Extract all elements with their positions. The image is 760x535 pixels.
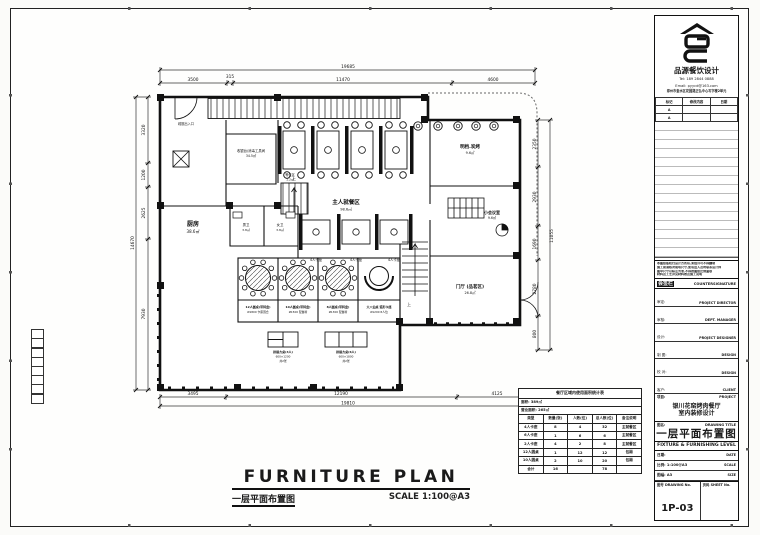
stats-cell: 4 xyxy=(568,423,593,431)
stats-cell: 4人卡座 xyxy=(519,423,544,431)
drawing-sheet: { "footer": { "title": "FURNITURE PLAN",… xyxy=(0,0,760,535)
sign-role: PROJECT DIRECTOR xyxy=(699,301,736,305)
rev-cell xyxy=(710,114,737,122)
room-area-kitchen: 38.6㎡ xyxy=(187,228,200,234)
stats-cell: 12人圆桌 xyxy=(519,448,544,456)
dim-bottom-overall: 19810 xyxy=(341,401,355,407)
drawing-title-label-cn: 图名: xyxy=(657,423,665,427)
exit-door-label: 疏散出入口 xyxy=(178,121,194,126)
table-row: 12人圆桌11212包厢 xyxy=(519,448,642,456)
sign-label: 审定: xyxy=(657,300,665,304)
booth-label-1: 4人卡座 xyxy=(310,257,323,262)
stats-header: 数量(张) xyxy=(543,415,568,423)
table-row: 合计1678 xyxy=(519,465,642,473)
wc-fixture xyxy=(286,212,295,218)
sign-row-director: 审定:PROJECT DIRECTOR xyxy=(655,289,738,307)
room-label-bbq: 明档.炭烤 xyxy=(460,143,480,150)
table-row: 6人卡座166主就餐区 xyxy=(519,432,642,440)
table-row: 2人卡座428主就餐区 xyxy=(519,440,642,448)
table-label-t4b: Ø1200 8人位 xyxy=(370,309,388,314)
drawing-no-label: 图号 DRAWING No. xyxy=(655,482,701,498)
meta-row-scale: 比例: 1:100@A3SCALE xyxy=(655,461,738,471)
stats-cell xyxy=(617,465,642,473)
stair-mid xyxy=(281,183,308,214)
rev-cell: A xyxy=(656,114,683,122)
stats-cell: 78 xyxy=(592,465,617,473)
sign-role: DESIGN xyxy=(722,371,736,375)
title-block: 品源餐饮设计 Tel: 189 2844 0888 Email: pyycd@1… xyxy=(654,15,739,521)
stats-cell: 10人圆桌 xyxy=(519,457,544,465)
table-row: A xyxy=(656,106,738,114)
sheet-no-label: 页码 SHEET No. xyxy=(701,482,738,498)
dim-left-2: 1200 xyxy=(141,169,147,180)
stats-cell: 8 xyxy=(543,423,568,431)
meta-row-date: 日期:DATE xyxy=(655,451,738,461)
sign-row-designer: 设计:PROJECT DESIGNER xyxy=(655,324,738,342)
dim-bottom-1: 3495 xyxy=(188,391,199,397)
stats-cell: 20 xyxy=(592,457,617,465)
dim-right-2: 2930 xyxy=(532,191,538,202)
meta-en: DATE xyxy=(726,453,736,457)
stats-header: 类型 xyxy=(519,415,544,423)
countersign-en: COUNTERSIGNATURE xyxy=(694,282,736,286)
sign-row-check: 校 对:DESIGN xyxy=(655,359,738,377)
drawing-footer: FURNITURE PLAN 一层平面布置图 SCALE 1:100@A3 xyxy=(232,467,470,507)
stats-cell: 10 xyxy=(568,457,593,465)
stair-top-run xyxy=(208,99,400,119)
rev-cell: A xyxy=(656,106,683,114)
company-email: Email: pyycd@163.com xyxy=(655,84,738,88)
dim-left-1: 3320 xyxy=(141,124,147,135)
stats-title: 餐厅区域内使用面积统计表 xyxy=(519,389,642,399)
stats-cell xyxy=(568,465,593,473)
sign-role: DEPT. MANAGER xyxy=(705,318,736,322)
project-name: 银川花窑烤肉餐厅 室内装修设计 xyxy=(655,401,738,422)
stats-cell: 6 xyxy=(568,432,593,440)
dim-top-2: 315 xyxy=(226,74,234,80)
meta-en: SCALE xyxy=(724,463,736,467)
stats-cell: 2 xyxy=(568,440,593,448)
table-label-t4a: 大八仙桌 弧形卡座 xyxy=(366,304,391,309)
note-line: 材料及工艺详见材料表及施工说明 xyxy=(657,273,736,277)
project-label-en: PROJECT xyxy=(719,395,736,399)
table-row: 10人圆桌21020包厢 xyxy=(519,457,642,465)
stats-cell: 6 xyxy=(592,432,617,440)
table-row: 4人卡座8432主就餐区 xyxy=(519,423,642,431)
footer-scale: SCALE 1:100@A3 xyxy=(389,492,470,502)
sheet-number-empty xyxy=(701,498,738,520)
table-label-t1b: Ø1800 卡座围合 xyxy=(247,309,269,314)
footer-title-cn: 一层平面布置图 xyxy=(232,492,295,507)
seating-stats-table: 餐厅区域内使用面积统计表 面积: 389㎡ 营业面积: 265㎡ 类型 数量(张… xyxy=(518,388,642,474)
meta-en: SIZE xyxy=(728,473,736,477)
sign-row-draft: 制 图:DESIGN xyxy=(655,342,738,360)
drawing-number-box: 图号 DRAWING No. 页码 SHEET No. 1P-03 xyxy=(655,481,738,520)
table-label-s2a: 拼接方桌(6人) xyxy=(336,349,356,354)
stats-sub1: 面积: 389㎡ xyxy=(519,398,642,406)
room-area-dining: 98.6㎡ xyxy=(340,207,352,212)
dim-left-4: 7930 xyxy=(141,308,147,319)
table-label-t3a: 8人圆桌(带转盘) xyxy=(327,304,350,309)
stats-cell: 1 xyxy=(543,448,568,456)
room-area-bbq: 9.6㎡ xyxy=(466,150,475,155)
rev-header: 日期 xyxy=(710,98,737,106)
meta-label: 日期: xyxy=(657,453,666,457)
fold-scale-strip xyxy=(31,330,44,404)
sheet-no-label-cn: 页码 xyxy=(703,483,710,487)
sign-row-manager: 审核:DEPT. MANAGER xyxy=(655,307,738,325)
floor-plan: 19685 3500 315 11470 4600 3495 12190 412… xyxy=(118,56,588,426)
stats-cell: 1 xyxy=(543,432,568,440)
stats-cell: 4 xyxy=(543,440,568,448)
booth-label-2: 4人卡座 xyxy=(350,257,363,262)
countersign-cn: 会签栏 xyxy=(657,281,674,287)
sign-role: DESIGN xyxy=(722,353,736,357)
dim-bottom-3: 4125 xyxy=(492,391,503,397)
meta-label: 比例: 1:100@A3 xyxy=(657,463,687,467)
sign-label: 客户: xyxy=(657,388,665,392)
project-label-cn: 项目: xyxy=(657,395,665,399)
room-area-wc-f: 3.8㎡ xyxy=(276,227,284,232)
countersign-header: 会签栏 COUNTERSIGNATURE xyxy=(655,279,738,289)
stats-cell: 主就餐区 xyxy=(617,423,642,431)
company-logo-icon xyxy=(680,23,714,63)
room-area-wc-m: 3.8㎡ xyxy=(242,227,250,232)
dim-top-overall: 19685 xyxy=(341,64,355,70)
stats-header: 人数(位) xyxy=(568,415,593,423)
project-name-line2: 室内装修设计 xyxy=(655,410,738,418)
revision-table: 标记 修改内容 日期 A A xyxy=(655,97,738,122)
stair-up-label-1: 上 xyxy=(292,175,296,181)
stats-cell: 包厢 xyxy=(617,457,642,465)
border-ticks-right xyxy=(746,8,749,525)
room-label-wc-m: 男卫 xyxy=(243,222,250,227)
dim-left-overall: 14670 xyxy=(130,236,136,250)
empty-revision-rows xyxy=(655,122,738,258)
stats-header: 总人数(位) xyxy=(592,415,617,423)
booth-label-3: 4人卡座 xyxy=(388,257,401,262)
sign-label: 制 图: xyxy=(657,353,667,357)
drawing-title-en: FIXTURE & FURNISHING LEVEL xyxy=(655,441,738,451)
table-label-s1b: 600×1200 xyxy=(276,355,291,359)
table-label-s1a: 拼接方桌(4人) xyxy=(273,349,293,354)
stats-cell: 2 xyxy=(543,457,568,465)
dim-top-4: 4600 xyxy=(488,77,499,83)
sign-label: 设计: xyxy=(657,335,665,339)
meta-row-size: 图幅: A3SIZE xyxy=(655,471,738,481)
border-ticks-bottom xyxy=(10,524,747,527)
rev-cell xyxy=(683,114,710,122)
sign-row-client: 客户:CLIENT xyxy=(655,377,738,395)
stats-cell: 12 xyxy=(568,448,593,456)
rev-header: 标记 xyxy=(656,98,683,106)
table-label-t3b: Ø1300 配餐椅 xyxy=(329,309,348,314)
stats-cell: 合计 xyxy=(519,465,544,473)
dim-right-overall: 11055 xyxy=(549,229,555,243)
wc-fixture xyxy=(233,212,242,218)
dim-top-3: 11470 xyxy=(336,77,350,83)
border-ticks-left xyxy=(9,8,12,525)
dim-left-3: 2625 xyxy=(141,207,147,218)
sign-role: PROJECT DESIGNER xyxy=(699,336,736,340)
sign-role: CLIENT xyxy=(723,388,736,392)
stats-cell: 主就餐区 xyxy=(617,440,642,448)
sign-label: 审核: xyxy=(657,318,665,322)
rev-cell xyxy=(683,106,710,114)
stats-cell: 8 xyxy=(592,440,617,448)
dim-right-4: 2780 xyxy=(532,283,538,294)
border-ticks-top xyxy=(10,7,747,10)
table-label-s2c: 共2张 xyxy=(342,359,350,363)
stair-up-label-2: 上 xyxy=(407,301,411,307)
stats-cell: 16 xyxy=(543,465,568,473)
company-address: 郑州市金水区花园路正弘中心写字楼2单元 xyxy=(655,89,738,93)
table-label-t2b: Ø1500 配餐椅 xyxy=(289,309,308,314)
stats-header: 备注说明 xyxy=(617,415,642,423)
rev-header: 修改内容 xyxy=(683,98,710,106)
table-label-s2b: 600×1800 xyxy=(339,355,354,359)
company-name: 品源餐饮设计 xyxy=(655,66,738,75)
stats-cell: 主就餐区 xyxy=(617,432,642,440)
table-label-s1c: 共2张 xyxy=(279,359,287,363)
dim-right-5: 800 xyxy=(532,330,538,338)
stats-cell: 12 xyxy=(592,448,617,456)
footer-title: FURNITURE PLAN xyxy=(232,467,470,490)
drawing-title-cn: 一层平面布置图 xyxy=(655,428,738,441)
stats-header-row: 类型 数量(张) 人数(位) 总人数(位) 备注说明 xyxy=(519,415,642,423)
company-tel: Tel: 189 2844 0888 xyxy=(655,77,738,81)
dim-bottom-2: 12190 xyxy=(334,391,348,397)
sign-label: 校 对: xyxy=(657,370,667,374)
table-row: A xyxy=(656,114,738,122)
room-label-dining: 主人就餐区 xyxy=(332,198,360,206)
stats-cell: 6人卡座 xyxy=(519,432,544,440)
dim-right-1: 2350 xyxy=(532,138,538,149)
dim-right-3: 1690 xyxy=(532,238,538,249)
table-label-t1a: 12人圆桌(带转盘) xyxy=(246,304,272,309)
table-label-t2a: 10人圆桌(带转盘) xyxy=(286,304,312,309)
stats-cell: 32 xyxy=(592,423,617,431)
stats-cell: 包厢 xyxy=(617,448,642,456)
dim-top-1: 3500 xyxy=(188,77,199,83)
room-label-kitchen: 厨房 xyxy=(187,220,199,228)
rev-cell xyxy=(710,106,737,114)
room-label-foyer: 门厅 (品茗区) xyxy=(456,283,484,290)
drawing-notes: 本图纸版权归设计方所有,未经许可不得翻制 施工前请核对现场尺寸,如有出入及时联系… xyxy=(655,260,738,279)
drawing-title-label-en: DRAWING TITLE xyxy=(705,423,736,427)
table-row: 标记 修改内容 日期 xyxy=(656,98,738,106)
room-area-cashier: 34.5㎡ xyxy=(246,153,257,158)
drawing-no-label-cn: 图号 xyxy=(657,483,664,487)
room-label-cashier: 收银台/消毒工具间 xyxy=(237,148,266,153)
room-area-meeting: 9.6㎡ xyxy=(488,215,497,220)
meta-label: 图幅: A3 xyxy=(657,473,672,477)
stats-sub2: 营业面积: 265㎡ xyxy=(519,406,642,414)
room-label-meeting: 小会议室 xyxy=(484,209,500,215)
room-label-wc-f: 女卫 xyxy=(277,222,284,227)
stats-cell: 2人卡座 xyxy=(519,440,544,448)
sheet-no-label-en: SHEET No. xyxy=(711,483,731,487)
drawing-number: 1P-03 xyxy=(655,498,701,520)
company-logo xyxy=(655,16,738,63)
drawing-no-label-en: DRAWING No. xyxy=(665,483,691,487)
room-area-foyer: 26.8㎡ xyxy=(465,290,477,295)
